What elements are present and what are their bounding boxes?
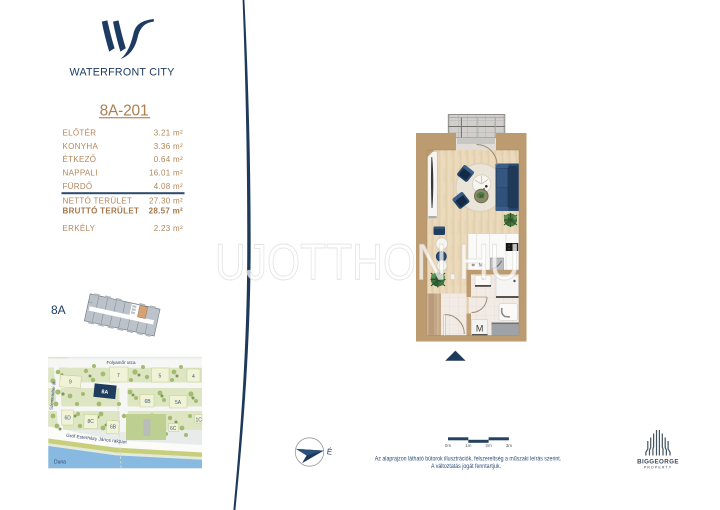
svg-text:4.08 m²: 4.08 m² xyxy=(154,182,183,191)
svg-text:É: É xyxy=(326,447,333,457)
svg-text:27.30 m²: 27.30 m² xyxy=(149,196,183,205)
svg-text:NAPPALI: NAPPALI xyxy=(63,169,98,178)
svg-text:6B: 6B xyxy=(145,399,152,405)
svg-text:BIGGEORGE: BIGGEORGE xyxy=(637,459,679,466)
svg-text:8C: 8C xyxy=(88,419,95,425)
svg-text:FÜRDŐ: FÜRDŐ xyxy=(63,182,93,191)
svg-text:M: M xyxy=(476,324,484,334)
svg-text:0.64 m²: 0.64 m² xyxy=(154,155,183,164)
svg-text:ERKÉLY: ERKÉLY xyxy=(63,224,96,233)
svg-text:1m: 1m xyxy=(465,443,472,448)
svg-text:KONYHA: KONYHA xyxy=(63,142,99,151)
svg-text:28.57 m²: 28.57 m² xyxy=(149,207,183,216)
svg-text:9: 9 xyxy=(69,380,72,386)
svg-text:4: 4 xyxy=(192,374,195,380)
svg-text:8A: 8A xyxy=(51,303,66,317)
svg-text:3m: 3m xyxy=(506,443,513,448)
svg-text:2.23 m²: 2.23 m² xyxy=(154,224,183,233)
svg-text:3.21 m²: 3.21 m² xyxy=(154,129,183,138)
svg-text:3.36 m²: 3.36 m² xyxy=(154,142,183,151)
svg-text:UJOTTHON.HU: UJOTTHON.HU xyxy=(215,234,520,291)
svg-text:8A: 8A xyxy=(101,389,109,396)
svg-text:0m: 0m xyxy=(445,443,452,448)
svg-text:Az alaprajzon látható bútorok: Az alaprajzon látható bútorok illusztrác… xyxy=(375,456,562,463)
svg-text:ELŐTÉR: ELŐTÉR xyxy=(63,129,97,138)
svg-text:5A: 5A xyxy=(175,400,182,406)
svg-text:PROPERTY: PROPERTY xyxy=(644,466,673,470)
svg-text:8A-201: 8A-201 xyxy=(100,102,149,119)
svg-text:2m: 2m xyxy=(485,443,492,448)
svg-text:16.01 m²: 16.01 m² xyxy=(149,169,183,178)
svg-text:Folyamőr utca: Folyamőr utca xyxy=(106,360,136,365)
svg-text:6D: 6D xyxy=(65,416,72,422)
svg-text:6B: 6B xyxy=(110,425,117,431)
svg-text:BRUTTÓ TERÜLET: BRUTTÓ TERÜLET xyxy=(63,207,140,216)
svg-text:5: 5 xyxy=(159,374,162,380)
svg-text:WATERFRONT CITY: WATERFRONT CITY xyxy=(70,66,175,78)
svg-text:7: 7 xyxy=(117,373,120,379)
svg-text:ÉTKEZŐ: ÉTKEZŐ xyxy=(63,155,97,164)
svg-text:A változtatás jogát fenntartju: A változtatás jogát fenntartjuk. xyxy=(431,463,501,470)
svg-text:NETTÓ TERÜLET: NETTÓ TERÜLET xyxy=(63,196,133,205)
svg-text:6C: 6C xyxy=(170,426,177,432)
svg-text:Duna: Duna xyxy=(54,460,66,466)
svg-text:1C: 1C xyxy=(196,418,203,424)
